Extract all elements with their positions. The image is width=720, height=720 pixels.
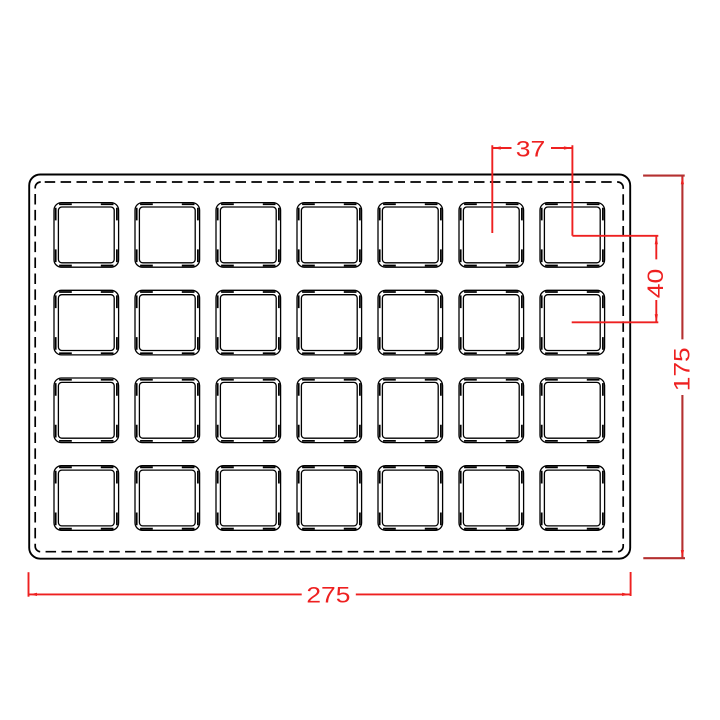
svg-text:40: 40 bbox=[643, 269, 668, 299]
svg-text:175: 175 bbox=[669, 347, 694, 391]
svg-text:275: 275 bbox=[306, 582, 350, 607]
svg-text:37: 37 bbox=[516, 136, 546, 161]
